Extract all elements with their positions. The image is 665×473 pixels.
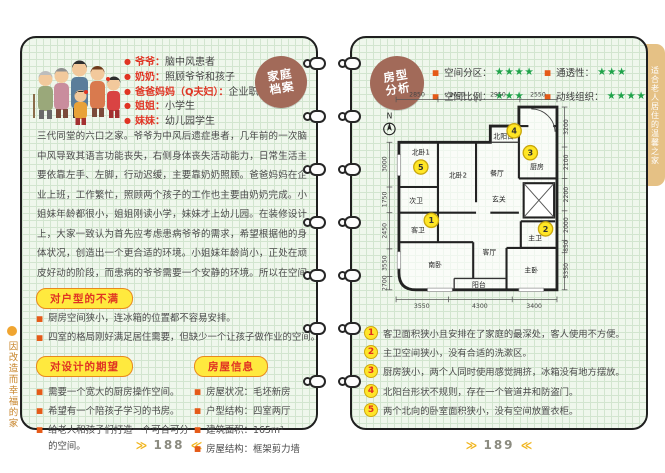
room-label-master-bath: 主卫 <box>528 233 542 242</box>
house-info-item: ■房屋状况：毛坯新房 <box>194 385 316 401</box>
complaints-list: ■厨房空间狭小，连冰箱的位置都不容易安排。 ■四室的格局刚好满足居住需要，但缺少… <box>36 312 314 349</box>
margin-note-text: 因改造而幸福的家 <box>5 341 19 429</box>
star-rating: ★★★★ <box>495 66 535 78</box>
svg-text:3000: 3000 <box>382 156 389 172</box>
svg-text:2450: 2450 <box>382 223 389 239</box>
margin-note: 因改造而幸福的家 <box>4 326 19 429</box>
house-info-title: 房屋信息 <box>194 356 268 377</box>
svg-text:N: N <box>387 111 393 120</box>
house-info-section: 房屋信息 ■房屋状况：毛坯新房 ■户型结构：四室两厅 ■建筑面积：165m² ■… <box>194 355 316 461</box>
intro-paragraph: 三代同堂的六口之家。爷爷为中风后遗症患者，几年前的一次脑中风导致其语言功能丧失，… <box>37 127 307 285</box>
floor-plan: N 2850 2600 29 <box>378 88 616 330</box>
plan-note-item: 2主卫空间狭小，没有合适的洗漱区。 <box>364 345 646 359</box>
plan-marker-1: 1 <box>424 213 438 227</box>
round-bullet-icon: ● <box>124 87 131 96</box>
page-arrow-icon: ≫ <box>466 439 478 452</box>
svg-text:1750: 1750 <box>382 191 389 207</box>
round-bullet-icon: ● <box>124 57 131 66</box>
note-number-badge: 5 <box>364 403 378 417</box>
rating-item: ■通透性：★★★ <box>544 63 665 81</box>
room-label-second-bath: 次卫 <box>409 196 423 205</box>
svg-text:5: 5 <box>418 162 424 172</box>
svg-text:3550: 3550 <box>414 303 430 310</box>
binder-ring-icon <box>338 321 367 335</box>
plan-marker-3: 3 <box>523 146 537 160</box>
plan-notes-list: 1客卫面积狭小且安排在了家庭的最深处，客人使用不方便。 2主卫空间狭小，没有合适… <box>364 326 646 422</box>
room-label-north-bed2: 北卧2 <box>449 171 467 179</box>
svg-text:2: 2 <box>543 224 549 234</box>
family-illustration <box>30 52 122 126</box>
binder-ring-icon <box>303 215 332 229</box>
svg-text:2000: 2000 <box>563 217 570 233</box>
room-label-north-bed1: 北卧1 <box>412 149 430 157</box>
square-bullet-icon: ■ <box>36 331 43 344</box>
left-page: ●爷爷：脑中风患者 ●奶奶：照顾爷爷和孩子 ●爸爸妈妈（Q夫妇）：企业职员 ●姐… <box>20 36 318 430</box>
family-profile-item: ●奶奶：照顾爷爷和孩子 <box>124 70 269 85</box>
svg-text:2600: 2600 <box>449 92 465 99</box>
design-wishes-title: 对设计的期望 <box>36 356 133 377</box>
svg-text:3400: 3400 <box>526 303 542 310</box>
svg-text:2700: 2700 <box>382 275 389 291</box>
square-bullet-icon: ■ <box>36 385 43 401</box>
wish-item: ■需要一个宽大的厨房操作空间。 <box>36 385 190 401</box>
square-bullet-icon: ■ <box>194 404 201 420</box>
svg-text:2850: 2850 <box>409 92 425 99</box>
plan-marker-4: 4 <box>507 124 521 138</box>
margin-dot-icon <box>7 326 17 336</box>
svg-text:4300: 4300 <box>472 303 488 310</box>
page-arrow-icon: ≪ <box>521 439 533 452</box>
rating-item: ■空间分区：★★★★ <box>432 63 544 81</box>
page-number-right: ≫ 189 ≪ <box>350 438 648 452</box>
house-info-item: ■建筑面积：165m² <box>194 423 316 439</box>
family-profile-item: ●姐姐：小学生 <box>124 99 269 114</box>
square-bullet-icon: ■ <box>194 442 201 458</box>
binder-ring-icon <box>338 374 367 388</box>
round-bullet-icon: ● <box>124 116 131 125</box>
svg-text:850: 850 <box>563 240 570 252</box>
svg-text:1: 1 <box>428 215 434 225</box>
design-wishes-section: 对设计的期望 ■需要一个宽大的厨房操作空间。 ■希望有一个陪孩子学习的书房。 ■… <box>36 355 190 458</box>
plan-marker-2: 2 <box>538 222 552 236</box>
square-bullet-icon: ■ <box>194 423 201 439</box>
svg-text:3550: 3550 <box>382 255 389 271</box>
right-page: 房型分析 ■空间分区：★★★★ ■空间比例：★★★ ■通透性：★★★ ■动线组织… <box>350 36 648 430</box>
house-info-item: ■户型结构：四室两厅 <box>194 404 316 420</box>
room-label-south-bed: 南卧 <box>428 260 442 269</box>
room-label-living: 客厅 <box>483 248 497 257</box>
svg-text:2950: 2950 <box>490 92 506 99</box>
square-bullet-icon: ■ <box>432 68 439 77</box>
plan-note-item: 1客卫面积狭小且安排在了家庭的最深处，客人使用不方便。 <box>364 326 646 340</box>
binder-ring-icon <box>338 268 367 282</box>
room-label-kitchen: 厨房 <box>530 162 544 171</box>
wish-item: ■给老人和孩子们打造一个可合可分的空间。 <box>36 423 190 454</box>
complaint-item: ■四室的格局刚好满足居住需要，但缺少一个让孩子做作业的空间。 <box>36 331 314 344</box>
binder-ring-icon <box>303 321 332 335</box>
room-label-dining: 餐厅 <box>490 169 504 178</box>
svg-text:2550: 2550 <box>530 92 546 99</box>
complaint-item: ■厨房空间狭小，连冰箱的位置都不容易安排。 <box>36 312 314 325</box>
complaints-title: 对户型的不满 <box>36 288 133 309</box>
svg-text:2200: 2200 <box>563 187 570 203</box>
plan-marker-5: 5 <box>414 160 428 174</box>
svg-text:2100: 2100 <box>563 154 570 170</box>
binder-ring-icon <box>338 109 367 123</box>
binder-ring-icon <box>303 162 332 176</box>
round-bullet-icon: ● <box>124 72 131 81</box>
binder-ring-icon <box>338 162 367 176</box>
svg-text:3200: 3200 <box>563 119 570 135</box>
room-label-master-bed: 主卧 <box>524 266 538 275</box>
binder-ring-icon <box>303 268 332 282</box>
book-spread: 因改造而幸福的家 适合老人居住的温馨之家 <box>0 0 665 473</box>
room-label-guest-bath: 客卫 <box>411 226 425 235</box>
elevator-shaft <box>524 183 554 217</box>
square-bullet-icon: ■ <box>36 312 43 325</box>
binder-ring-icon <box>303 109 332 123</box>
plan-note-item: 3厨房狭小，两个人同时使用感觉拥挤，冰箱没有地方摆放。 <box>364 364 646 378</box>
binder-ring-icon <box>338 56 367 70</box>
square-bullet-icon: ■ <box>36 423 43 454</box>
plan-note-item: 5两个北向的卧室面积狭小，没有空间放置衣柜。 <box>364 403 646 417</box>
binder-ring-icon <box>338 215 367 229</box>
family-profile-item: ●爸爸妈妈（Q夫妇）：企业职员 <box>124 85 269 100</box>
star-rating: ★★★ <box>597 66 627 78</box>
svg-text:3: 3 <box>528 148 534 158</box>
house-info-item: ■房屋结构：框架剪力墙 <box>194 442 316 458</box>
family-profile-item: ●爷爷：脑中风患者 <box>124 55 269 70</box>
plan-note-item: 4北阳台形状不规则，存在一个管道井和防盗门。 <box>364 384 646 398</box>
north-compass-icon: N <box>384 111 395 134</box>
note-number-badge: 2 <box>364 345 378 359</box>
svg-text:4: 4 <box>511 126 517 136</box>
square-bullet-icon: ■ <box>36 404 43 420</box>
room-label-balcony: 阳台 <box>472 280 486 289</box>
square-bullet-icon: ■ <box>544 68 551 77</box>
round-bullet-icon: ● <box>124 101 131 110</box>
binder-ring-icon <box>303 56 332 70</box>
wish-item: ■希望有一个陪孩子学习的书房。 <box>36 404 190 420</box>
family-profile-list: ●爷爷：脑中风患者 ●奶奶：照顾爷爷和孩子 ●爸爸妈妈（Q夫妇）：企业职员 ●姐… <box>124 55 269 129</box>
square-bullet-icon: ■ <box>194 385 201 401</box>
room-label-entry: 玄关 <box>492 194 506 203</box>
binder-ring-icon <box>303 374 332 388</box>
svg-text:5350: 5350 <box>563 263 570 279</box>
